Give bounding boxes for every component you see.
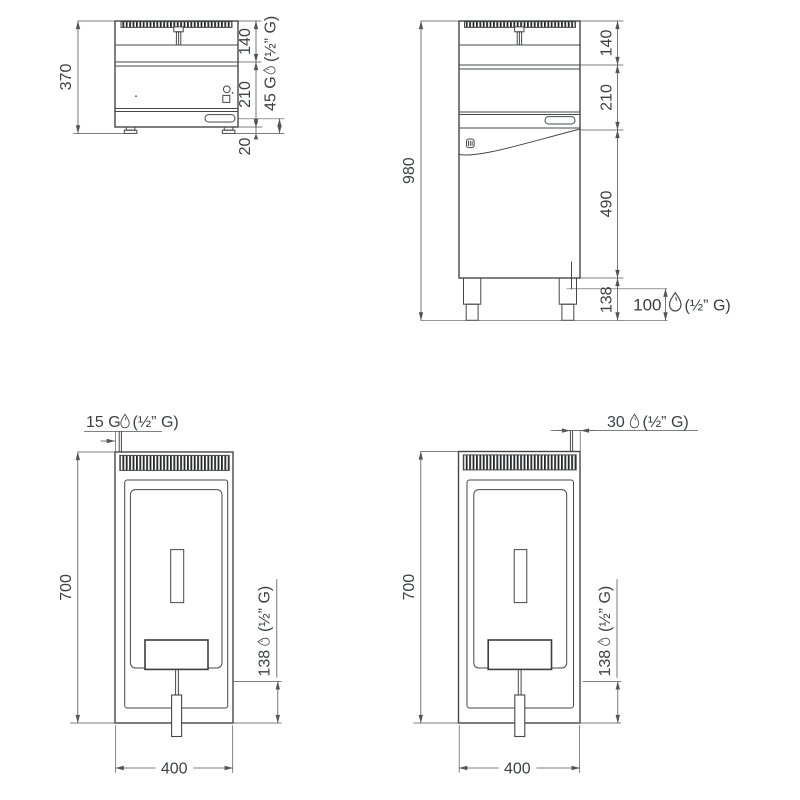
dim-section-4: 138 <box>599 286 616 313</box>
dim-width: 400 <box>161 760 188 777</box>
basket-handle-slot <box>514 550 527 603</box>
top-view-floor: 30 (½” G) 700 138 (½” G) 400 <box>401 414 698 777</box>
gas-thread-label: (½” G) <box>263 16 280 62</box>
gas-height-value: 100 <box>633 296 661 315</box>
rear-offset-value: 138 <box>597 650 614 677</box>
panel-lines <box>459 45 580 128</box>
handle-oval <box>545 117 575 124</box>
front-view-countertop: 370 140 210 20 45 G (½” G) <box>58 16 284 156</box>
leg-left <box>464 278 481 320</box>
gas-connection-label: 45 G (½” G) <box>263 16 280 111</box>
gas-offset-value: 30 <box>607 414 625 431</box>
dim-depth: 700 <box>58 574 75 601</box>
handle-oval <box>205 115 235 122</box>
door-curve <box>459 129 580 155</box>
gas-connection-label: 100 (½” G) <box>633 293 731 315</box>
technical-drawing-page: 370 140 210 20 45 G (½” G) <box>0 0 800 800</box>
dim-feet-height: 20 <box>237 138 254 156</box>
dim-depth: 700 <box>401 574 418 601</box>
drain-pipe <box>515 695 525 737</box>
basket-handle-slot <box>171 550 184 603</box>
panel-lines <box>115 45 238 112</box>
door-vent-icon <box>467 139 475 148</box>
gas-flame-icon <box>670 293 681 311</box>
gas-thread-label: (½” G) <box>133 414 179 431</box>
dim-section-top: 140 <box>237 28 254 55</box>
dim-overall-height: 370 <box>58 64 75 91</box>
dim-section-1: 140 <box>599 30 616 57</box>
dim-section-3: 490 <box>599 191 616 218</box>
gas-connection-label: 15 G (½” G) <box>85 414 179 452</box>
gas-flame-icon <box>121 414 129 428</box>
vent-grille <box>120 455 229 470</box>
drain-pipe <box>172 695 182 737</box>
drain-cover <box>145 640 208 669</box>
rear-offset-value: 138 <box>257 650 274 677</box>
rear-gas-label: 138 (½” G) <box>597 586 614 677</box>
dimension-drawing: 370 140 210 20 45 G (½” G) <box>0 0 800 800</box>
drain-cover <box>488 640 551 669</box>
flue-cap <box>174 27 183 45</box>
dim-overall-height: 980 <box>401 157 418 184</box>
control-knob-icon <box>223 86 234 103</box>
foot-right <box>222 127 235 133</box>
body-outline <box>459 452 581 724</box>
foot-left <box>124 127 137 133</box>
gas-flame-icon <box>630 414 638 428</box>
dimension-lines <box>421 21 667 320</box>
rear-gas-label: 138 (½” G) <box>257 586 274 677</box>
tank-outline <box>125 480 228 708</box>
rear-thread-label: (½” G) <box>257 586 274 632</box>
gas-flame-icon <box>264 67 275 74</box>
tank-outline <box>467 480 574 708</box>
body-outline <box>115 452 233 723</box>
top-view-countertop: 15 G (½” G) 700 138 (½” G) <box>58 414 281 777</box>
front-view-floor: 980 140 210 490 138 100 (½” G) <box>401 21 731 320</box>
pilot-dot <box>135 95 137 97</box>
vent-grille <box>463 455 576 470</box>
flue-cap <box>515 27 524 45</box>
dim-section-2: 210 <box>599 84 616 111</box>
gas-connection-label: 30 (½” G) <box>551 414 698 452</box>
rear-thread-label: (½” G) <box>597 586 614 632</box>
gas-thread-label: (½” G) <box>643 414 689 431</box>
gas-offset-value: 15 G <box>86 414 121 431</box>
gas-flame-icon <box>598 638 609 645</box>
dim-width: 400 <box>504 760 531 777</box>
leg-right <box>559 278 576 320</box>
dim-section-mid: 210 <box>237 81 254 108</box>
gas-label-value: 45 G <box>263 76 280 111</box>
body-outline <box>459 21 580 278</box>
gas-flame-icon <box>258 638 269 645</box>
gas-thread-label: (½” G) <box>685 298 731 315</box>
